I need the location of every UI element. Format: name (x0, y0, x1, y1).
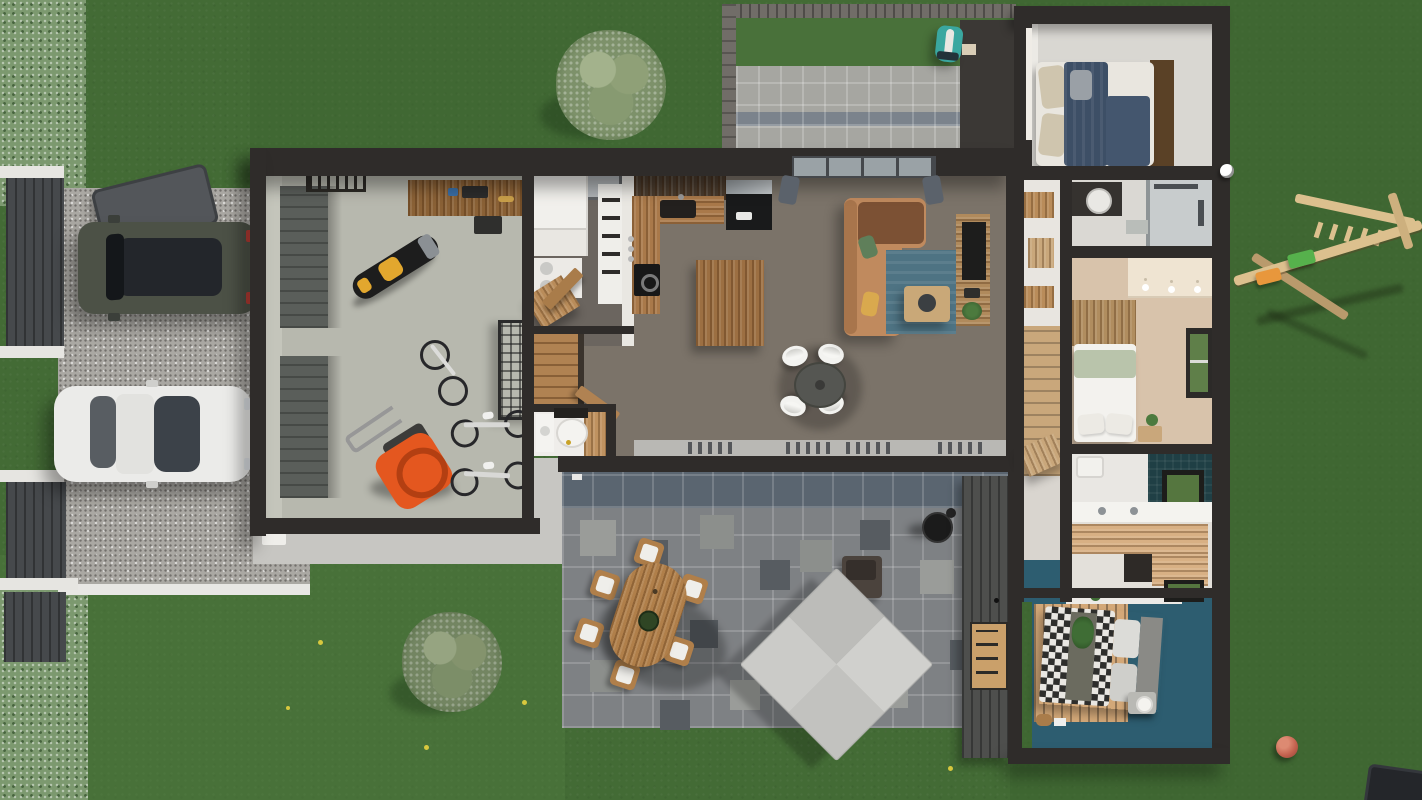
shower (1146, 180, 1212, 246)
wardrobe (1128, 258, 1212, 298)
living-window (792, 156, 936, 178)
workbench (408, 180, 530, 216)
sedan-body (54, 386, 252, 482)
laundry-counter-top (1072, 524, 1208, 554)
toilet-bowl (556, 418, 588, 448)
bath-mat (1126, 220, 1148, 234)
paver-tile (800, 540, 832, 572)
flower (424, 745, 429, 750)
master-bed (1074, 344, 1136, 442)
tall-shelf (598, 184, 624, 304)
floor-plan-rendering (0, 0, 1422, 800)
flower (522, 700, 527, 705)
paver-tile (860, 520, 890, 550)
paver-blue-band (562, 470, 1010, 508)
garage-door-panel (280, 356, 328, 498)
hall-east-wall (1060, 166, 1072, 602)
suv-roof-glass (118, 238, 222, 296)
window-divider (1190, 360, 1208, 363)
coffee-table-tray (918, 294, 936, 312)
annex-door (970, 622, 1008, 690)
appliance-door (540, 262, 553, 275)
annex-wall (962, 476, 1010, 758)
headboard-panel-wall (1072, 300, 1136, 346)
wing-top-wall (1014, 6, 1230, 24)
paver-tile (700, 515, 734, 549)
kitchen-counter-left (632, 196, 660, 314)
parasol-base-lid (846, 560, 876, 580)
toilet-cistern (554, 408, 588, 418)
gate-rail (0, 578, 78, 590)
garage-west-wall (250, 148, 266, 536)
robot-mower-front (936, 51, 959, 61)
pantry-cabinets (534, 174, 588, 256)
bike-seat (482, 411, 494, 419)
terrace-label-chip (572, 474, 582, 480)
staircase (534, 334, 580, 410)
hall-closet (1024, 192, 1054, 218)
flower (948, 766, 953, 771)
flower (318, 640, 323, 645)
bbq-tray (946, 508, 956, 518)
bench-tool (462, 186, 488, 198)
wc-vanity (536, 414, 554, 452)
console-plant (962, 302, 982, 320)
bedside-plant (1146, 414, 1158, 426)
toilet-south (1076, 456, 1104, 478)
sliding-door-slats (846, 442, 890, 454)
corner-object (1363, 763, 1422, 800)
bedside-table (1138, 426, 1162, 442)
shelf-slat (602, 270, 620, 274)
fridge-handle (736, 212, 752, 220)
shower-fixture (1198, 200, 1204, 226)
toy-bear (1036, 714, 1052, 726)
gate-rail (0, 346, 64, 358)
fruit-bowl (635, 608, 661, 634)
coffee-table (904, 286, 950, 322)
bath-counter (1072, 502, 1212, 522)
counter-faucet (1130, 507, 1138, 515)
kitchen-sink (660, 200, 696, 218)
sliding-door-slats (688, 442, 732, 454)
garage-south-wall (250, 518, 540, 534)
window-glass-garden (1167, 475, 1199, 505)
suv-mirror (108, 313, 120, 321)
gate-south-lower (4, 592, 66, 662)
suv-body (78, 222, 256, 314)
stationary-bike (444, 448, 534, 501)
pendant-light (1168, 286, 1175, 293)
spice-jar (628, 246, 634, 252)
table-centerpiece (815, 380, 825, 390)
pergola-beam-top (722, 4, 1016, 18)
counter-faucet (1098, 507, 1106, 515)
shrub (402, 612, 502, 712)
annex-door-handle (994, 598, 999, 603)
partition-laundry-kids (1014, 588, 1228, 598)
sofa-armrest (844, 200, 857, 334)
pergola-beam-left (722, 4, 736, 150)
lawn-mower (344, 410, 454, 506)
kitchen-island (696, 260, 764, 346)
table-knob (652, 588, 658, 594)
partition-bath1-master (1066, 246, 1228, 258)
annex-door-panes (976, 630, 998, 674)
roof-strip (960, 20, 1016, 152)
kitchen-faucet (678, 194, 684, 200)
hall-closet (1024, 286, 1054, 308)
wc-sink (540, 426, 550, 436)
nightstand (1128, 692, 1156, 714)
driveway-curb (58, 584, 310, 595)
gate-rail (0, 166, 64, 178)
pendant-light (1194, 286, 1201, 293)
garage-east-wall (522, 148, 534, 520)
bicycle-wheel (438, 376, 468, 406)
red-ball (1276, 736, 1298, 758)
north-patio-pavers (736, 66, 964, 150)
shower-bar (1154, 184, 1198, 189)
sage-throw (1074, 350, 1136, 378)
garage-door-shadow (328, 356, 342, 498)
toy-paper (1054, 718, 1066, 726)
laundry-notch (1124, 554, 1152, 582)
garage-door-panel (280, 186, 328, 328)
fridge (726, 180, 772, 230)
round-tree (556, 30, 666, 140)
pillow-white (1105, 413, 1133, 436)
lamp (1136, 696, 1153, 713)
sedan-windshield (154, 396, 200, 472)
pillow-grey (1070, 70, 1092, 100)
shelf-slat (602, 252, 620, 256)
under-bench-box (474, 216, 502, 234)
concrete-path (253, 530, 565, 564)
window-glass-garden (1190, 334, 1208, 392)
paver-blue-strip (736, 112, 964, 126)
master-window (1186, 328, 1212, 398)
wing-wallface-white (1026, 28, 1032, 140)
mower-dock-pad (962, 44, 976, 55)
pendant-light (1142, 284, 1149, 291)
mower-deck (370, 428, 457, 514)
shelf-slat (602, 216, 620, 220)
shower-glass (1146, 180, 1150, 246)
suv-windshield (106, 233, 124, 300)
wc-faucet-gold (566, 440, 571, 445)
shelf-slat (602, 234, 620, 238)
gate-rail (0, 470, 64, 482)
lawn-top-mid (250, 0, 750, 160)
sliding-door-slats (786, 442, 830, 454)
bike-seat (483, 462, 495, 470)
sliding-door-slats (938, 442, 982, 454)
spice-jar (628, 256, 634, 262)
dining-table (794, 362, 846, 408)
partition-master-bath2 (1066, 444, 1228, 454)
hall-closet (1028, 238, 1054, 268)
pillow-white (1077, 413, 1105, 436)
garage-door-shadow (328, 186, 342, 328)
paver-tile (660, 700, 690, 730)
bench-tool-blue (448, 188, 458, 196)
paver-tile (580, 520, 616, 556)
bike-frame (464, 422, 510, 427)
gate-north-panel (6, 178, 64, 346)
round-sink (1086, 188, 1112, 214)
cooktop (634, 264, 660, 296)
suv-mirror (108, 215, 120, 223)
paver-tile (920, 560, 954, 594)
south-threshold-wall (558, 456, 1010, 472)
sedan-mirror (146, 481, 158, 488)
sedan-mirror (146, 380, 158, 387)
wc-wall-right (606, 404, 616, 460)
console-objects (964, 288, 980, 298)
bench-cable (498, 196, 514, 202)
pillow-grey (1112, 619, 1141, 659)
shelf-slat (602, 198, 620, 202)
entry-wall-stub (530, 326, 634, 334)
flower (286, 706, 290, 710)
paver-tile (760, 560, 790, 590)
cooktop-knob (641, 274, 659, 292)
wing-right-wall (1212, 6, 1230, 764)
bed-north-mattress (1036, 62, 1154, 166)
gate-south-panel (6, 482, 66, 578)
tv-screen (962, 222, 986, 280)
sedan-roof (116, 394, 154, 474)
spice-jar (628, 236, 634, 242)
bath-vanity-dark (1072, 182, 1122, 216)
sedan-rear-glass (90, 396, 116, 468)
wing-bottom-wall (1014, 748, 1230, 764)
duvet-navy-fold (1106, 96, 1150, 166)
partition-bed1-bath1 (1014, 166, 1228, 180)
soccer-ball (1220, 164, 1234, 178)
fridge-top (726, 180, 772, 194)
hall-west-wall (1014, 166, 1024, 602)
robot-mower (934, 25, 964, 64)
